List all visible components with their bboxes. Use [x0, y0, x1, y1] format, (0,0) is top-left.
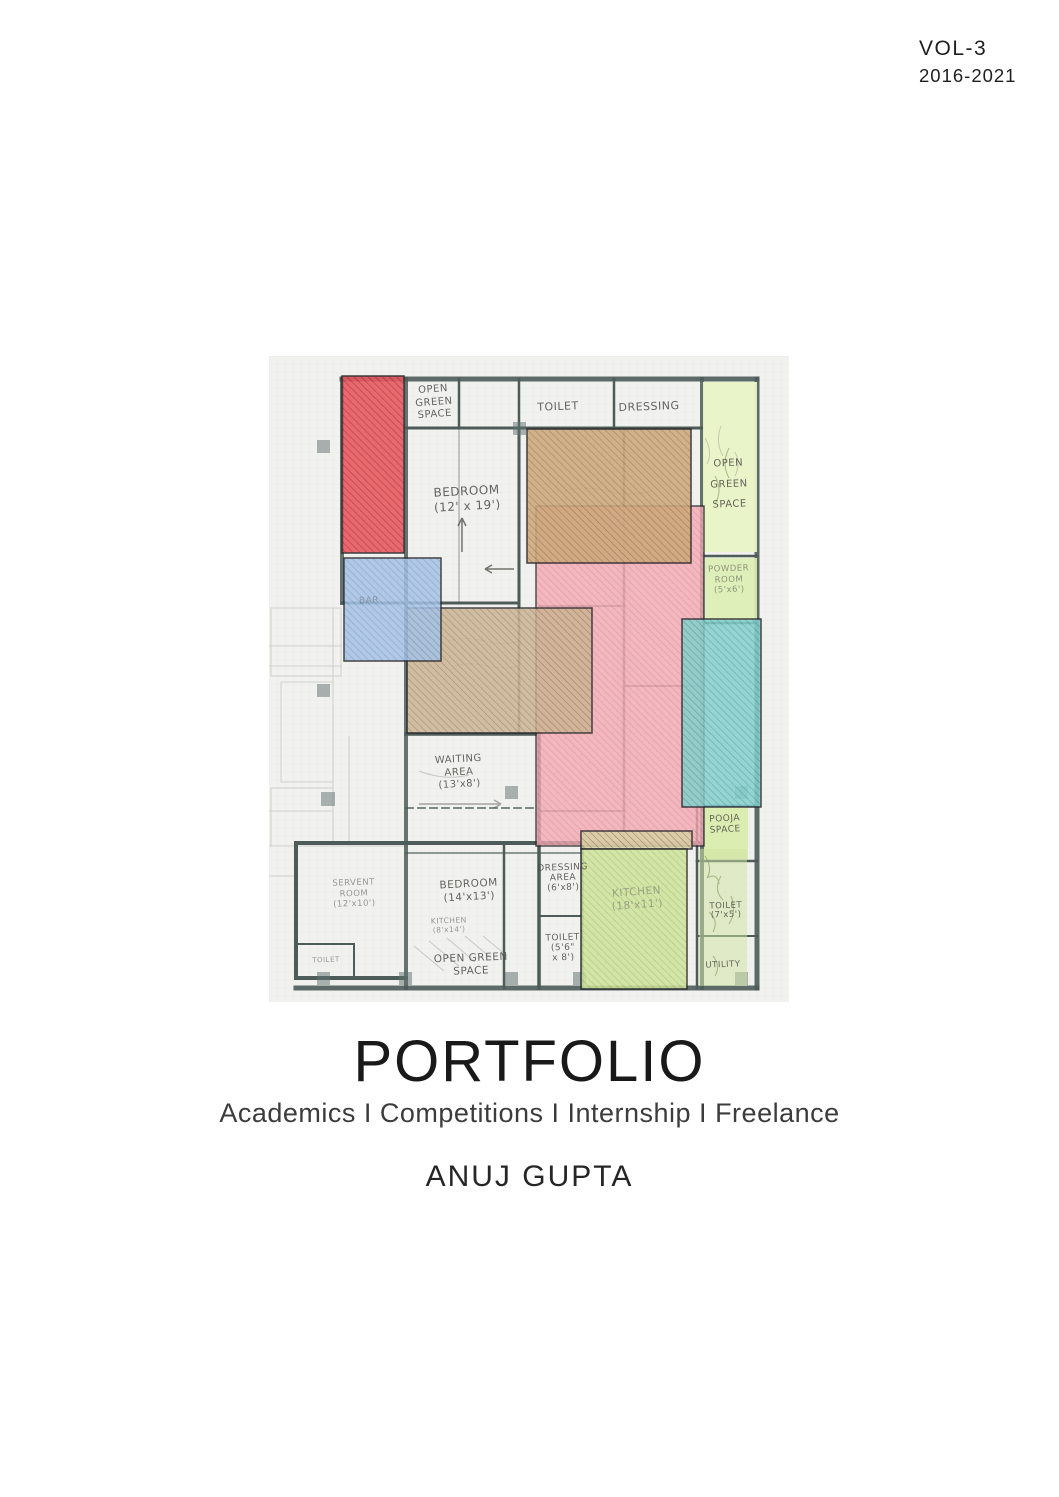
title-block: PORTFOLIO Academics I Competitions I Int… [0, 1033, 1059, 1194]
volume-number: VOL-3 [919, 36, 1016, 62]
zone-blue-hatch [344, 558, 441, 661]
label-kitchen-small: KITCHEN (8'x14') [431, 915, 468, 935]
portfolio-cover-page: VOL-3 2016-2021 [0, 0, 1059, 1497]
label-dressing-area: DRESSING AREA (6'x8') [537, 863, 589, 894]
label-powder-room: POWDER ROOM (5'x6') [708, 563, 750, 596]
label-dressing-top: DRESSING [618, 399, 679, 415]
label-toilet-mid: TOILET (5'6" x 8') [545, 933, 580, 964]
zone-red-hatch [342, 376, 404, 553]
label-open-green-space-top: OPEN GREEN SPACE [414, 383, 454, 423]
label-open-green-space-bottom: OPEN GREEN SPACE [434, 951, 509, 980]
label-kitchen-main: KITCHEN (18'x11') [610, 884, 663, 914]
label-toilet-bottom-left: TOILET [312, 956, 340, 966]
author-name: ANUJ GUPTA [0, 1160, 1059, 1194]
zone-green-hatch [581, 849, 687, 989]
label-pooja-space: POOJA SPACE [709, 813, 741, 837]
label-waiting-area: WAITING AREA (13'x8') [435, 753, 484, 793]
page-title: PORTFOLIO [0, 1033, 1059, 1091]
zone-khaki-hatch [581, 831, 692, 849]
label-servant-room: SERVENT ROOM (12'x10') [332, 877, 376, 910]
zone-tan-top-hatch [527, 429, 691, 563]
volume-block: VOL-3 2016-2021 [919, 36, 1016, 87]
label-bedroom-main: BEDROOM (12' x 19') [433, 482, 501, 515]
label-open-green-space-right: OPEN GREEN SPACE [709, 453, 748, 516]
volume-years: 2016-2021 [919, 64, 1016, 87]
page-subtitle: Academics I Competitions I Internship I … [0, 1098, 1059, 1129]
floor-plan-sketch: OPEN GREEN SPACE TOILET DRESSING BEDROOM… [269, 356, 789, 1002]
label-toilet-right: TOILET (7'x5') [709, 901, 742, 921]
zone-teal-hatch [682, 619, 761, 807]
label-bedroom-two: BEDROOM (14'x13') [439, 876, 499, 905]
label-toilet-top: TOILET [537, 399, 579, 414]
label-bar: BAR [359, 596, 379, 608]
label-utility: UTILITY [705, 959, 740, 971]
